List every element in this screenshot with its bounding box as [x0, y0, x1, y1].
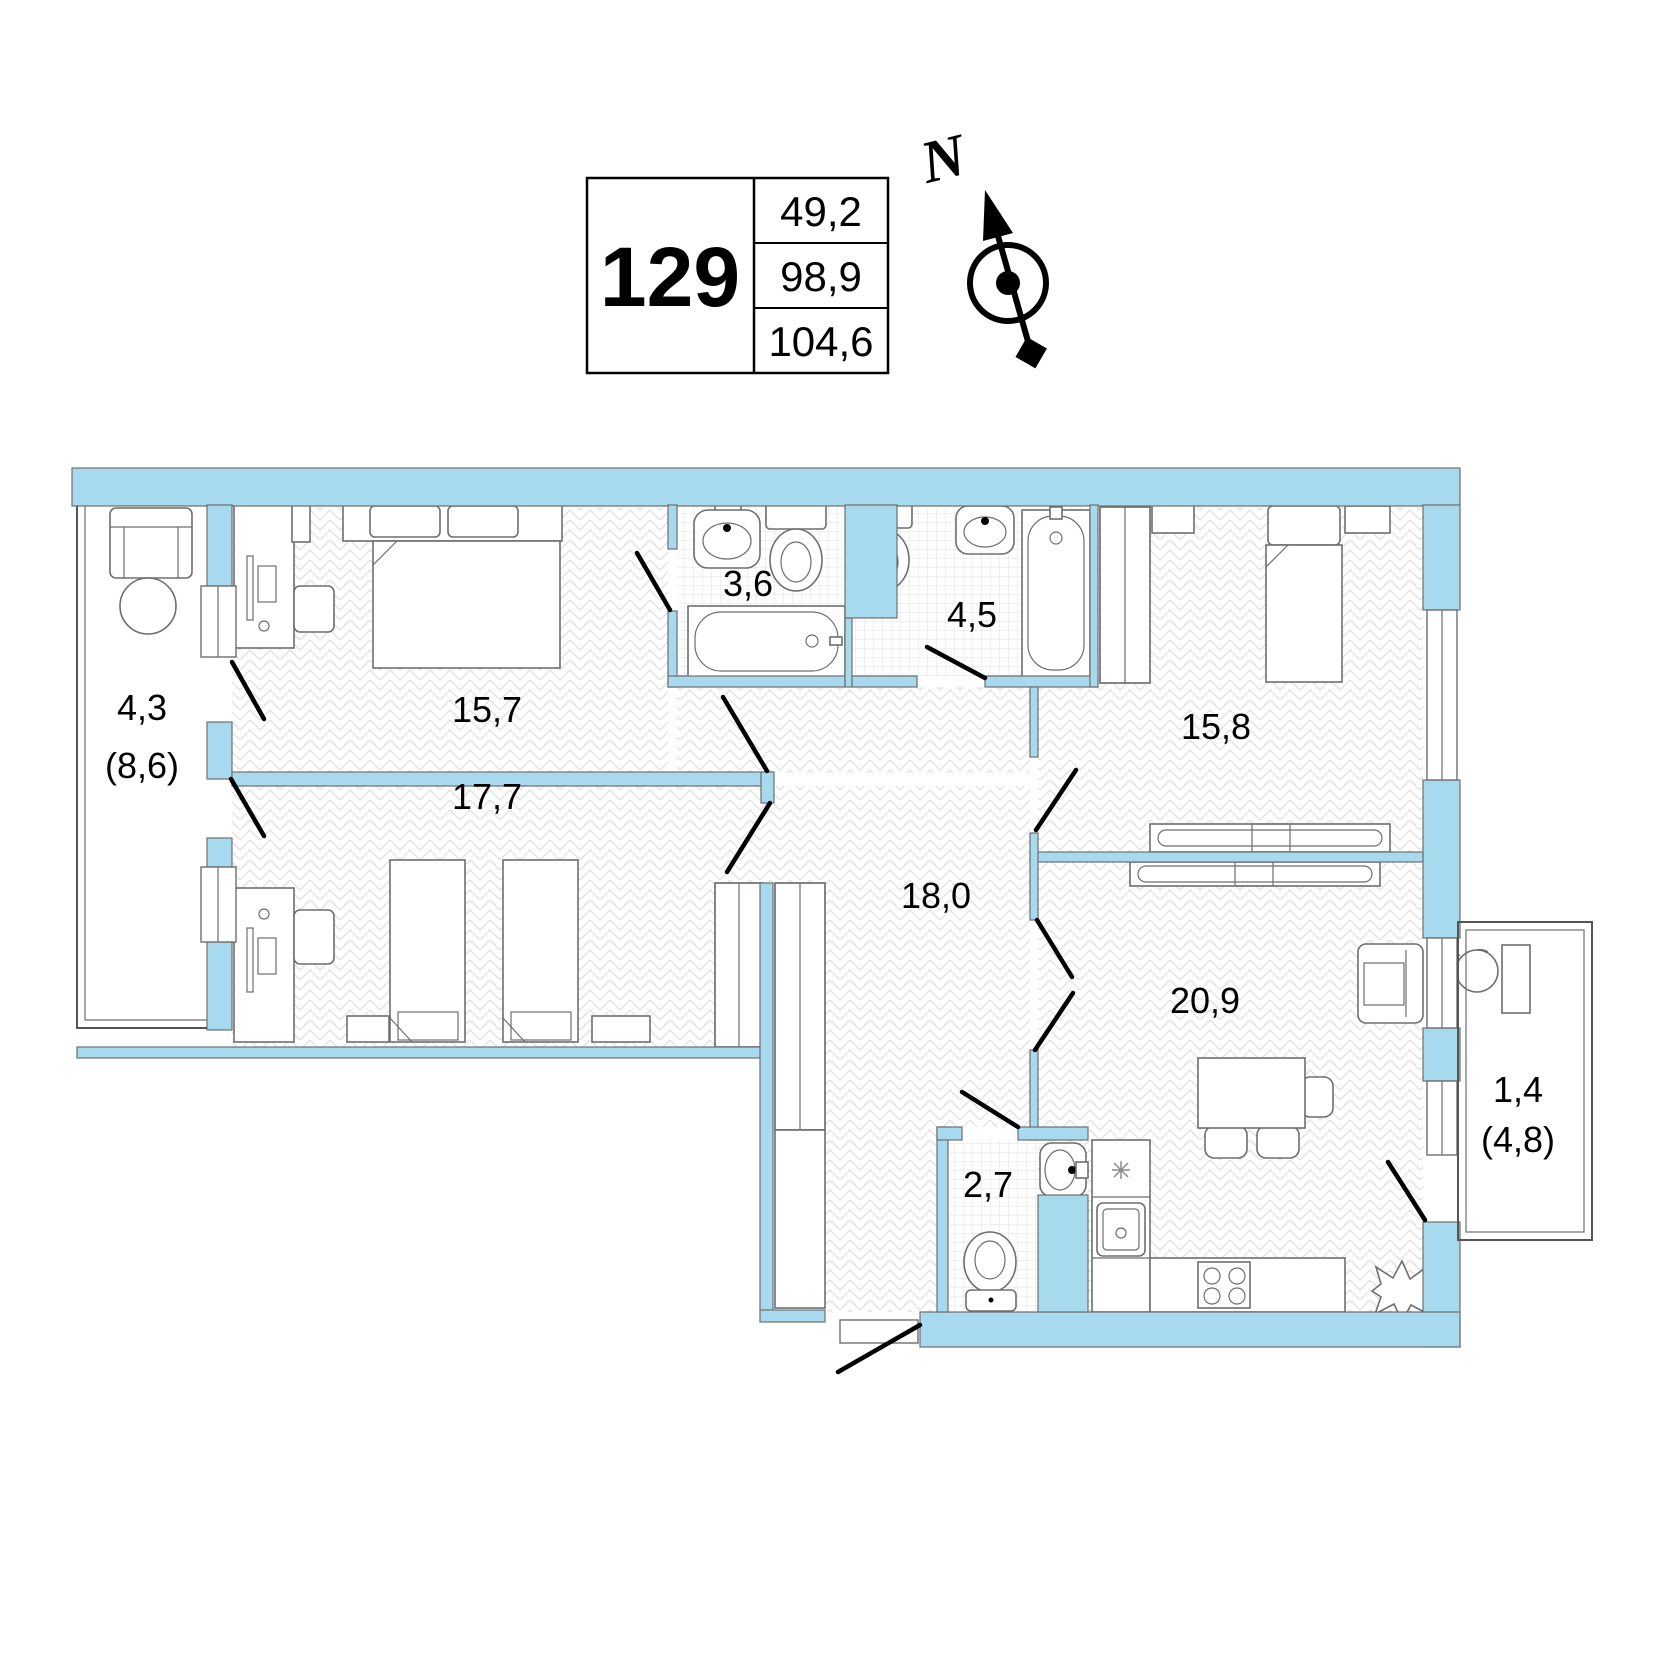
desk-icon [234, 888, 294, 1042]
unit-number: 129 [600, 230, 740, 324]
window-icon [201, 586, 236, 657]
wardrobe-icon [1100, 507, 1150, 683]
label-bedroom3: 15,8 [1181, 706, 1251, 747]
desk-chair-icon [294, 910, 334, 964]
compass-needle-icon [983, 190, 1013, 241]
floor-plan: 4,3 (8,6) 15,7 17,7 3,6 4,5 15,8 18,0 2,… [0, 0, 1668, 1667]
double-bed-icon [343, 502, 562, 668]
appliance-icon [1112, 1161, 1130, 1179]
window-icon [1427, 610, 1457, 780]
sink-icon [956, 501, 1014, 554]
label-hallway: 18,0 [901, 875, 971, 916]
armchair-icon [110, 508, 192, 578]
nightstand-icon [1345, 506, 1390, 533]
window-icon [1427, 1081, 1457, 1155]
kitchen-sink-icon [1097, 1203, 1145, 1256]
label-bedroom2: 17,7 [452, 776, 522, 817]
sink-icon [694, 503, 760, 568]
desk-chair-icon [294, 586, 334, 632]
bathtub-icon [1022, 507, 1090, 677]
balcony-left-furniture [110, 508, 192, 634]
label-bathroom1: 3,6 [723, 563, 773, 604]
label-balcony-left-area: 4,3 [117, 687, 167, 728]
shelf-icon [1152, 505, 1194, 533]
wardrobe-icon [715, 883, 763, 1047]
label-wc: 2,7 [963, 1164, 1013, 1205]
wall-top [72, 468, 1460, 506]
wall-right [1423, 505, 1460, 610]
single-bed-icon [503, 860, 578, 1042]
unit-area-1: 49,2 [780, 188, 862, 235]
wardrobe-icon [775, 883, 825, 1308]
bathtub-icon [688, 606, 845, 677]
unit-area-3: 104,6 [768, 318, 873, 365]
sideboard-icon [1130, 862, 1380, 886]
label-living-kitchen: 20,9 [1170, 980, 1240, 1021]
nightstand-icon [592, 1016, 650, 1042]
unit-area-2: 98,9 [780, 253, 862, 300]
shelf-icon [292, 502, 310, 542]
label-bedroom1: 15,7 [452, 689, 522, 730]
unit-info-table: 129 49,2 98,9 104,6 [587, 178, 888, 373]
round-table-icon [120, 578, 176, 634]
label-balcony-right-total: (4,8) [1481, 1119, 1555, 1160]
compass-north-label: N [913, 121, 975, 196]
armchair-icon [1358, 944, 1423, 1023]
toilet-icon [964, 1232, 1016, 1311]
sink-icon [1040, 1143, 1088, 1197]
label-balcony-left-total: (8,6) [105, 745, 179, 786]
window-icon [201, 867, 236, 942]
desk-icon [1502, 945, 1530, 1013]
sideboard-icon [1150, 824, 1390, 852]
single-bed-icon [390, 860, 465, 1042]
wall-bottom-left [77, 1047, 772, 1058]
bedroom1-furniture [234, 500, 562, 668]
window-icon [1427, 938, 1457, 1028]
label-balcony-right-area: 1,4 [1493, 1069, 1543, 1110]
toilet-icon [766, 503, 826, 591]
single-bed-icon [1266, 506, 1342, 682]
compass-rose: N [913, 121, 1047, 369]
label-bathroom2: 4,5 [947, 594, 997, 635]
nightstand-icon [347, 1016, 389, 1042]
desk-icon [234, 500, 294, 648]
swivel-chair-icon [1456, 950, 1498, 992]
wall-bottom [920, 1312, 1460, 1347]
floor-plan-page: 4,3 (8,6) 15,7 17,7 3,6 4,5 15,8 18,0 2,… [0, 0, 1668, 1667]
dining-table-icon [1198, 1058, 1305, 1128]
stove-icon [1198, 1262, 1250, 1308]
